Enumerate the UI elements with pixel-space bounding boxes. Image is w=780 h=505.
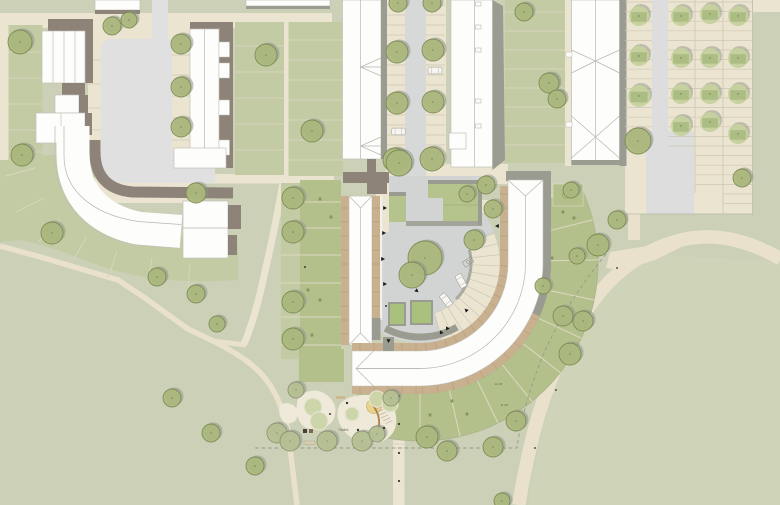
svg-text:H 4,5: H 4,5 (495, 382, 503, 386)
svg-text:H 4,5: H 4,5 (501, 403, 509, 407)
svg-text:Trädlek: Trädlek (338, 428, 349, 432)
